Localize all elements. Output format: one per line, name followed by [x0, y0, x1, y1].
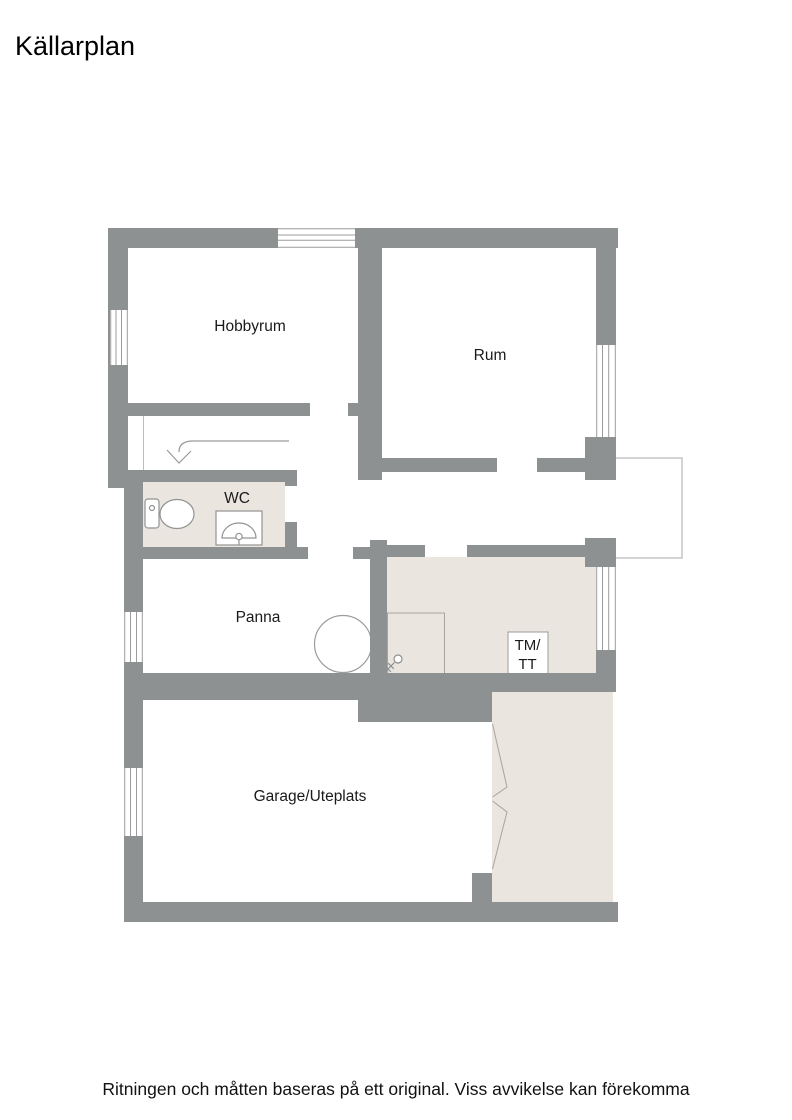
window-marker — [278, 228, 355, 248]
wall-rum-south-west — [382, 458, 497, 472]
window-marker — [596, 345, 616, 437]
room-label-rum: Rum — [474, 347, 507, 364]
floorplan-page: Källarplan — [0, 0, 792, 1120]
wall-right-lower — [596, 650, 616, 692]
sink-icon — [216, 511, 262, 546]
room-label-hobbyrum: Hobbyrum — [214, 318, 286, 335]
sink-drain — [236, 533, 242, 539]
room-label-wc: WC — [224, 490, 250, 507]
wall-wc-east-north — [285, 470, 297, 486]
boiler-icon — [315, 616, 372, 673]
wall-bottom-exterior — [124, 902, 618, 922]
wall-garage-north-east — [472, 673, 596, 692]
wall-garage-east-south — [472, 873, 492, 902]
toilet-bowl — [160, 500, 194, 529]
uteplats-floor — [492, 692, 613, 902]
stairs — [144, 416, 290, 470]
wall-hall-stub — [353, 547, 370, 559]
washer-dryer-label-line2: TT — [518, 656, 536, 673]
entrance-stoop — [613, 458, 682, 558]
wall-hobbyrum-south-stub — [348, 403, 358, 416]
wall-wc-east-south — [285, 522, 297, 547]
wall-garage-east-north — [472, 692, 492, 722]
laundry-floor — [387, 557, 596, 675]
drain-circle — [394, 655, 402, 663]
wall-divider-hobbyrum-rum — [358, 228, 382, 480]
window-pane — [124, 612, 143, 662]
wall-left-upper — [108, 248, 128, 488]
washer-dryer-unit: TM/ TT — [508, 632, 548, 676]
wall-laundry-west — [370, 540, 387, 675]
wall-laundry-north-east — [467, 545, 596, 557]
wall-right-upper — [596, 248, 616, 345]
wall-stairs-south — [108, 470, 297, 482]
window-marker — [110, 310, 128, 365]
window-pane — [596, 345, 616, 437]
washer-dryer-label-line1: TM/ — [515, 637, 542, 654]
wall-garage-north-step — [358, 700, 492, 722]
wall-garage-north-west — [124, 673, 472, 700]
wall-laundry-north-west — [387, 545, 425, 557]
window-marker — [124, 612, 143, 662]
disclaimer-text: Ritningen och måtten baseras på ett orig… — [0, 1079, 792, 1100]
wall-rum-south-east — [537, 458, 596, 472]
wall-wc-south — [124, 547, 308, 559]
wall-hobbyrum-south — [108, 403, 310, 416]
floorplan-canvas: TM/ TT — [0, 0, 792, 1120]
window-pane — [110, 310, 128, 365]
window-pane — [124, 768, 143, 836]
toilet-icon — [145, 499, 194, 529]
window-pane — [596, 567, 616, 650]
toilet-cistern — [145, 499, 159, 528]
toilet-button — [150, 506, 155, 511]
room-label-garage: Garage/Uteplats — [254, 788, 367, 805]
stairs-down-arrow-icon — [179, 441, 289, 452]
room-label-panna: Panna — [236, 609, 281, 626]
window-pane — [278, 228, 355, 248]
window-marker — [596, 567, 616, 650]
window-marker — [124, 768, 143, 836]
